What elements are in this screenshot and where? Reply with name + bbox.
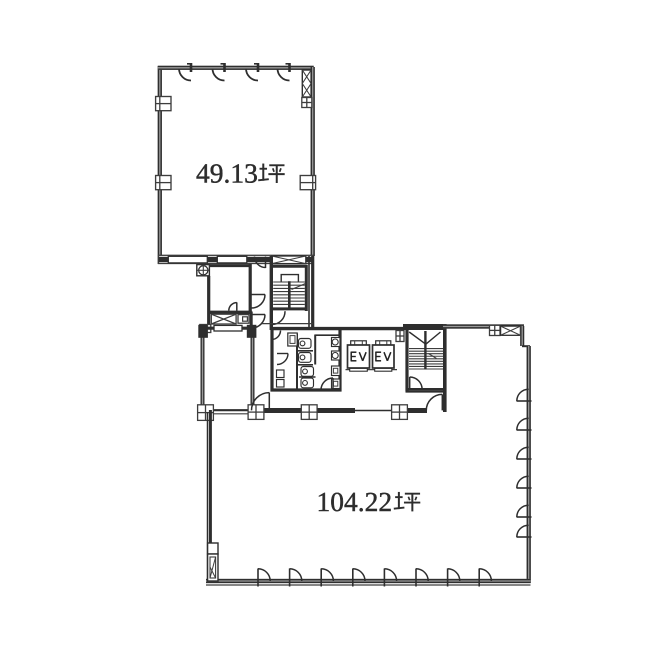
svg-text:49.13: 49.13: [196, 158, 258, 189]
svg-text:104.22: 104.22: [317, 486, 393, 517]
